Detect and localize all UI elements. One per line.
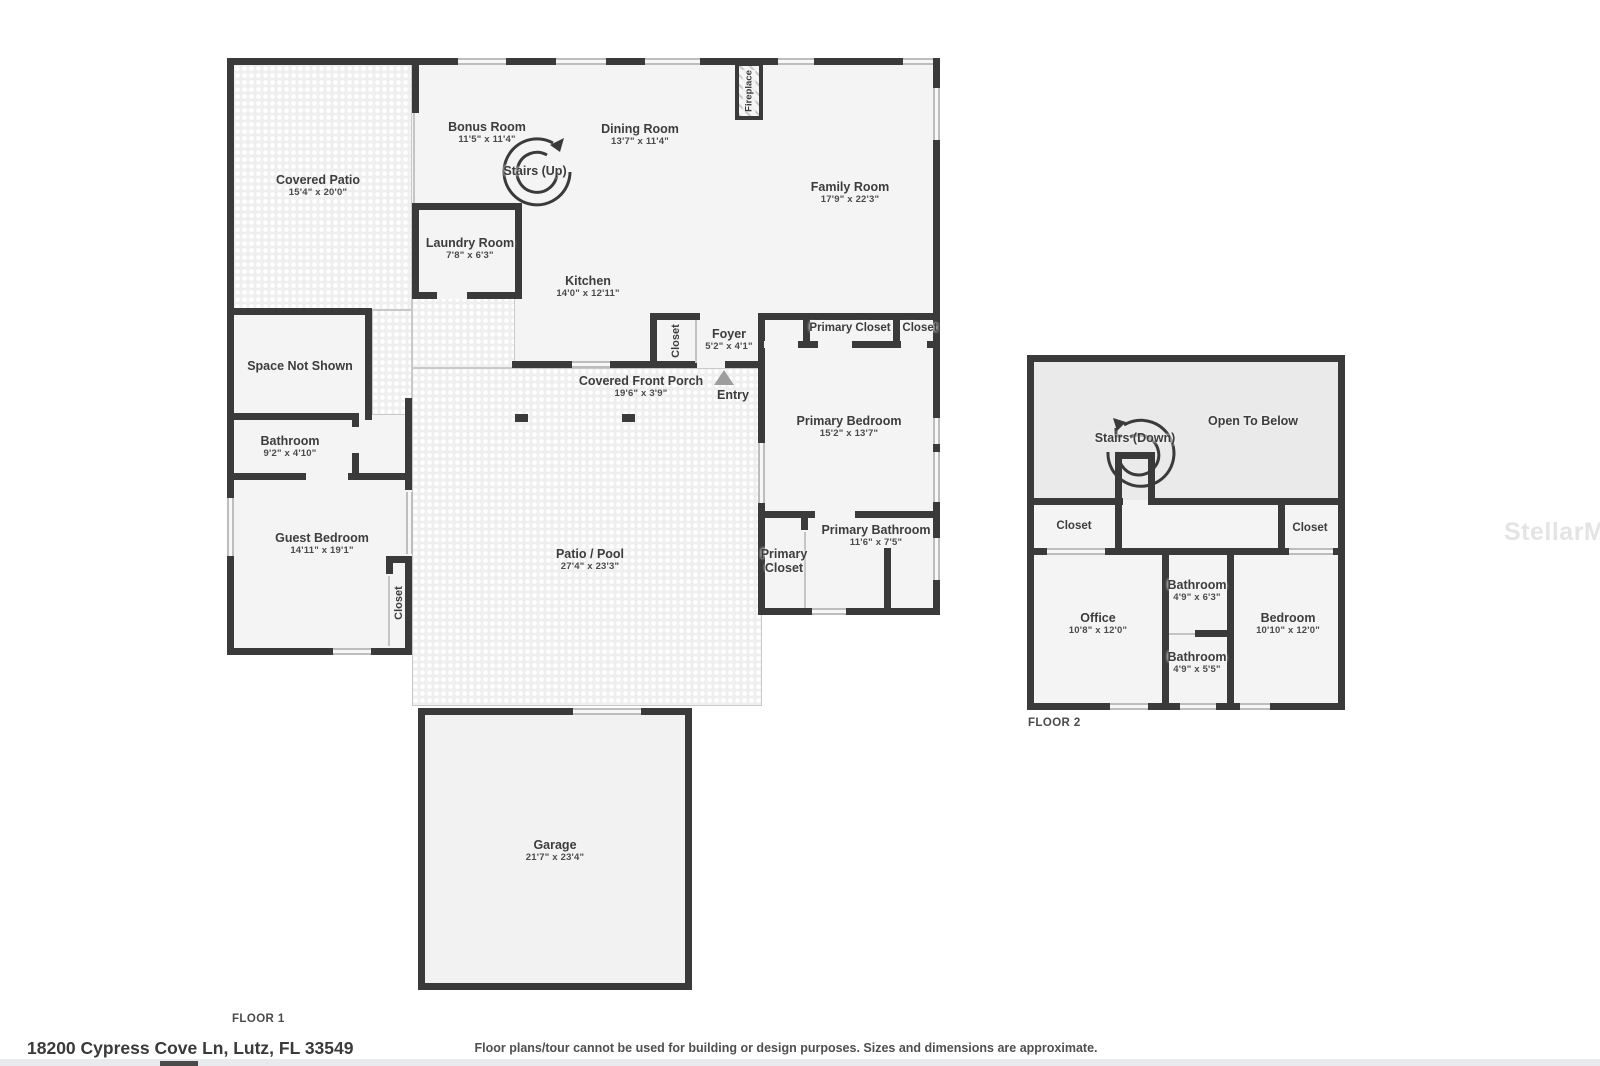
- room-label-office: Office 10'8" x 12'0": [1069, 611, 1127, 637]
- room-name: Foyer: [705, 327, 752, 341]
- wall: [884, 548, 891, 610]
- room-name: Space Not Shown: [247, 359, 353, 373]
- room-name: Primary Bedroom: [797, 414, 902, 428]
- wall: [365, 308, 372, 420]
- door-opening: [901, 341, 927, 348]
- room-dims: 15'4" x 20'0": [276, 187, 360, 199]
- room-label-guest-bedroom: Guest Bedroom 14'11" x 19'1": [275, 531, 369, 557]
- room-dims: 11'5" x 11'4": [448, 134, 526, 146]
- room-label-primary-closet: Primary Closet: [752, 547, 816, 575]
- room-label-covered-patio: Covered Patio 15'4" x 20'0": [276, 173, 360, 199]
- open-to-below-area: [1034, 362, 1338, 500]
- room-label-stairs-up: Stairs (Up): [503, 164, 566, 178]
- window: [1110, 703, 1148, 710]
- room-name: Bedroom: [1256, 611, 1320, 625]
- window: [227, 498, 234, 556]
- wall: [1151, 498, 1345, 505]
- room-dims: 15'2" x 13'7": [797, 428, 902, 440]
- room-name: Guest Bedroom: [275, 531, 369, 545]
- room-name: Closet: [1292, 521, 1327, 535]
- closet-door-line: [388, 576, 390, 646]
- wall: [1227, 555, 1234, 703]
- window: [406, 492, 413, 554]
- closet-door: [1047, 548, 1105, 555]
- room-dims: 19'6" x 3'9": [579, 388, 703, 400]
- stellar-mls-watermark: StellarMLS: [1504, 518, 1600, 547]
- room-dims: 4'9" x 5'5": [1167, 664, 1226, 676]
- room-dims: 10'8" x 12'0": [1069, 625, 1127, 637]
- room-name: Office: [1069, 611, 1127, 625]
- wall: [1027, 498, 1123, 505]
- floor2-tag: FLOOR 2: [1028, 717, 1081, 729]
- wall: [801, 518, 808, 530]
- room-label-patio-pool: Patio / Pool 27'4" x 23'3": [556, 547, 624, 573]
- window: [933, 418, 940, 444]
- room-name: Open To Below: [1208, 414, 1298, 428]
- room-dims: 13'7" x 11'4": [601, 136, 679, 148]
- room-name: Patio / Pool: [556, 547, 624, 561]
- room-label-entry: Entry: [717, 388, 749, 402]
- closet-door: [1289, 548, 1333, 555]
- wall: [418, 708, 692, 715]
- room-label-bathroom: Bathroom 9'2" x 4'10": [260, 434, 319, 460]
- window: [933, 452, 940, 502]
- wall: [227, 58, 234, 655]
- porch-post: [515, 414, 528, 422]
- room-label-primary-bedroom: Primary Bedroom 15'2" x 13'7": [797, 414, 902, 440]
- room-name: Stairs (Up): [503, 164, 566, 178]
- floor1-tag: FLOOR 1: [232, 1013, 285, 1025]
- door-opening: [306, 473, 348, 480]
- wall: [758, 313, 940, 320]
- fireplace-label: Fireplace: [743, 70, 756, 112]
- room-name: Bathroom: [260, 434, 319, 448]
- room-name: Dining Room: [601, 122, 679, 136]
- room-label-bathroom-upper: Bathroom 4'9" x 6'3": [1167, 578, 1226, 604]
- room-dims: 4'9" x 6'3": [1167, 592, 1226, 604]
- wall: [412, 292, 522, 299]
- wall: [227, 308, 372, 315]
- room-dims: 11'6" x 7'5": [821, 537, 930, 549]
- door-opening: [764, 341, 798, 348]
- window: [903, 58, 933, 65]
- room-name: Closet: [1056, 519, 1091, 533]
- wall: [1338, 355, 1345, 710]
- room-label-space-not-shown: Space Not Shown: [247, 359, 353, 373]
- window: [758, 443, 765, 503]
- room-name: Bonus Room: [448, 120, 526, 134]
- room-label-laundry-room: Laundry Room 7'8" x 6'3": [426, 236, 514, 262]
- room-label-primary-bathroom: Primary Bathroom 11'6" x 7'5": [821, 523, 930, 549]
- door-opening: [352, 427, 359, 453]
- property-address: 18200 Cypress Cove Ln, Lutz, FL 33549: [27, 1038, 353, 1059]
- room-label-open-to-below: Open To Below: [1208, 414, 1298, 428]
- window: [556, 58, 606, 65]
- window: [572, 361, 610, 368]
- room-label-guest-closet: Closet: [393, 586, 405, 620]
- window: [1180, 703, 1216, 710]
- stairs-down-icon: [1096, 410, 1180, 499]
- room-name: Bathroom: [1167, 578, 1226, 592]
- wall: [758, 608, 940, 615]
- room-name: Closet: [902, 321, 937, 335]
- closet-door-line: [695, 320, 697, 363]
- room-label-closet-left: Closet: [1056, 519, 1091, 533]
- wall: [227, 413, 359, 420]
- room-label-dining-room: Dining Room 13'7" x 11'4": [601, 122, 679, 148]
- room-name: Family Room: [811, 180, 890, 194]
- wall: [405, 556, 412, 655]
- wall: [650, 313, 700, 320]
- room-dims: 7'8" x 6'3": [426, 250, 514, 262]
- room-name: Bathroom: [1167, 650, 1226, 664]
- screen-line: [413, 113, 415, 205]
- room-name: Garage: [526, 838, 584, 852]
- room-dims: 27'4" x 23'3": [556, 561, 624, 573]
- door-opening: [437, 292, 467, 299]
- wall: [933, 58, 940, 615]
- window: [812, 608, 846, 615]
- wall: [1195, 630, 1234, 637]
- floor-plan-canvas: Fireplace Covered Patio 15'4" x 20'0" Bo…: [0, 0, 1600, 1066]
- room-label-kitchen-closet: Closet: [670, 324, 682, 358]
- door-opening: [815, 511, 855, 518]
- room-label-hall-closet: Closet: [902, 321, 937, 335]
- window: [333, 648, 371, 655]
- bottom-carousel-edge: [0, 1059, 1600, 1066]
- wall: [685, 708, 692, 990]
- window: [1240, 703, 1270, 710]
- room-dims: 9'2" x 4'10": [260, 448, 319, 460]
- wall: [412, 58, 419, 113]
- room-label-foyer: Foyer 5'2" x 4'1": [705, 327, 752, 353]
- room-label-bathroom-lower: Bathroom 4'9" x 5'5": [1167, 650, 1226, 676]
- wall: [650, 313, 657, 368]
- door-opening: [697, 361, 725, 368]
- wall: [418, 708, 425, 990]
- room-label-garage: Garage 21'7" x 23'4": [526, 838, 584, 864]
- window: [778, 58, 814, 65]
- door-opening: [818, 341, 852, 348]
- room-name: Stairs (Down): [1095, 431, 1176, 445]
- room-label-covered-front-porch: Covered Front Porch 19'6" x 3'9": [579, 374, 703, 400]
- wall: [512, 361, 765, 368]
- window: [645, 58, 700, 65]
- room-name: Kitchen: [556, 274, 619, 288]
- room-name: Primary Closet: [752, 547, 816, 575]
- room-label-bonus-room: Bonus Room 11'5" x 11'4": [448, 120, 526, 146]
- wall: [405, 398, 412, 490]
- room-dims: 5'2" x 4'1": [705, 341, 752, 353]
- wall: [1027, 355, 1034, 710]
- room-dims: 14'11" x 19'1": [275, 545, 369, 557]
- disclaimer-text: Floor plans/tour cannot be used for buil…: [474, 1041, 1097, 1055]
- window: [458, 58, 506, 65]
- room-label-stairs-down: Stairs (Down): [1095, 431, 1176, 445]
- wall: [1278, 505, 1285, 555]
- door-line: [1169, 633, 1195, 635]
- wall: [227, 648, 412, 655]
- room-dims: 17'9" x 22'3": [811, 194, 890, 206]
- window: [573, 708, 641, 715]
- room-dims: 10'10" x 12'0": [1256, 625, 1320, 637]
- room-label-bedroom: Bedroom 10'10" x 12'0": [1256, 611, 1320, 637]
- carousel-thumbnail-sliver[interactable]: [160, 1061, 198, 1066]
- porch-post: [622, 414, 635, 422]
- wall: [418, 983, 692, 990]
- room-name: Entry: [717, 388, 749, 402]
- room-label-family-room: Family Room 17'9" x 22'3": [811, 180, 890, 206]
- room-name: Covered Front Porch: [579, 374, 703, 388]
- room-dims: 14'0" x 12'11": [556, 288, 619, 300]
- room-name: Laundry Room: [426, 236, 514, 250]
- patio-pool-texture: [412, 368, 762, 706]
- room-name: Covered Patio: [276, 173, 360, 187]
- room-dims: 21'7" x 23'4": [526, 852, 584, 864]
- room-label-closet-right: Closet: [1292, 521, 1327, 535]
- wall: [1027, 355, 1345, 362]
- window: [933, 538, 940, 580]
- room-name: Primary Closet: [809, 321, 890, 335]
- room-label-kitchen: Kitchen 14'0" x 12'11": [556, 274, 619, 300]
- fireplace: Fireplace: [735, 62, 763, 120]
- patio-kitchen-strip-texture: [412, 296, 515, 368]
- room-name: Primary Bathroom: [821, 523, 930, 537]
- wall: [412, 203, 419, 299]
- entry-arrow-icon: [714, 370, 734, 385]
- room-label-primary-closet-top: Primary Closet: [809, 321, 890, 335]
- window: [933, 88, 940, 140]
